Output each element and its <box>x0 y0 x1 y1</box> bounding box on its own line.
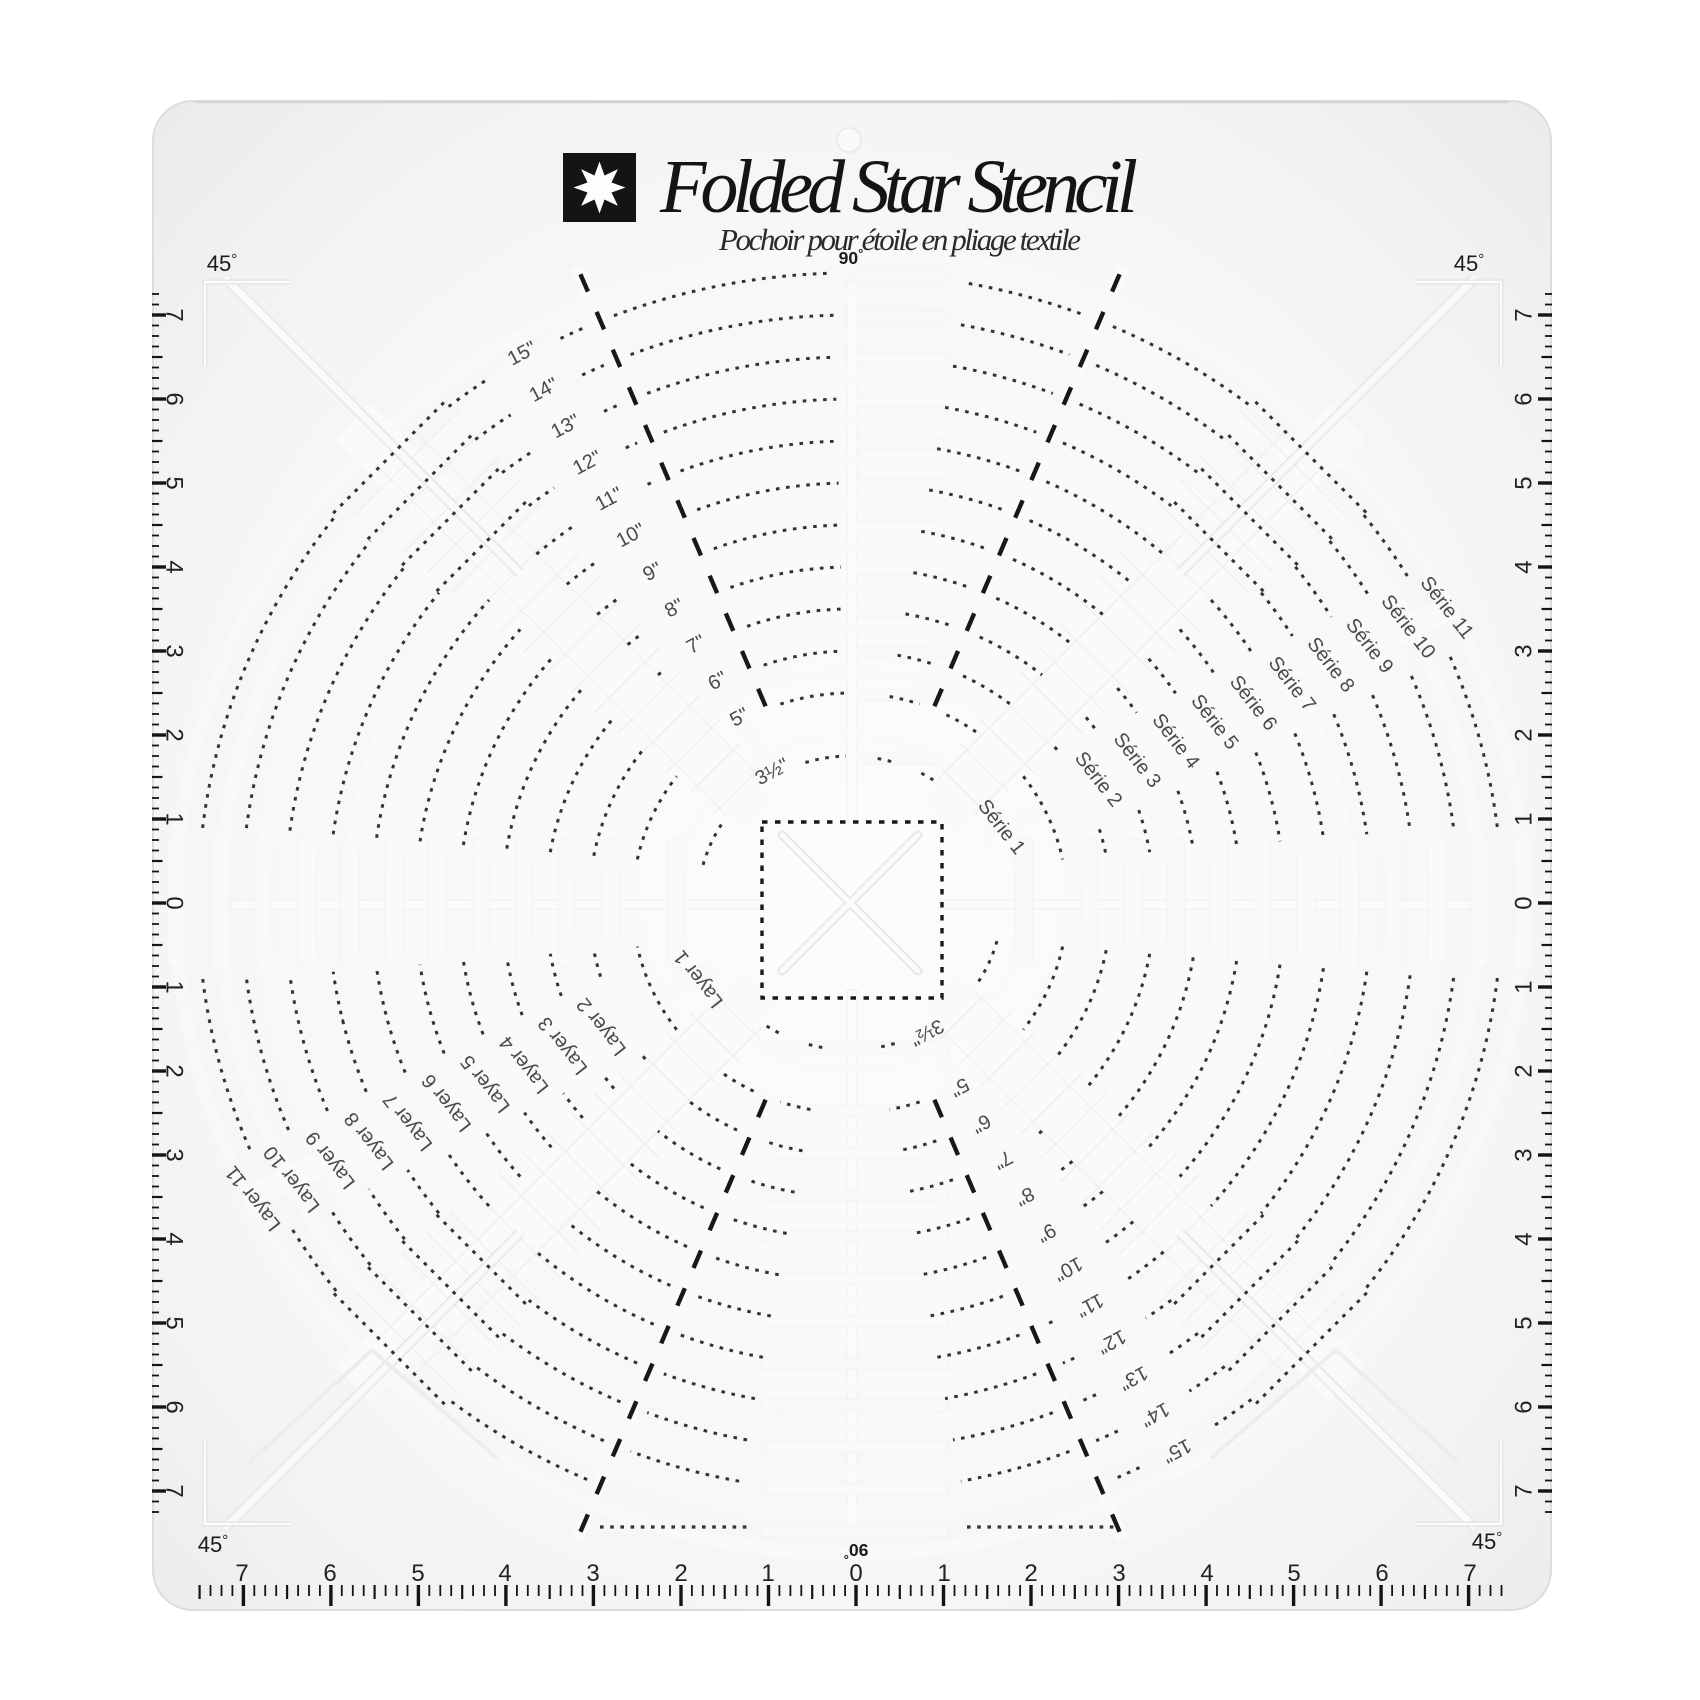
svg-text:2: 2 <box>161 728 188 741</box>
svg-text:6: 6 <box>161 1400 188 1413</box>
svg-text:4: 4 <box>1511 560 1538 573</box>
svg-text:1: 1 <box>161 812 188 825</box>
svg-text:0: 0 <box>161 896 188 909</box>
svg-text:5: 5 <box>161 476 188 489</box>
svg-text:5: 5 <box>411 1560 424 1587</box>
svg-text:6: 6 <box>1511 1400 1538 1413</box>
svg-text:3: 3 <box>1112 1560 1125 1587</box>
svg-text:3: 3 <box>161 644 188 657</box>
svg-text:4: 4 <box>161 1232 188 1245</box>
svg-text:Pochoir pour étoile en pliage: Pochoir pour étoile en pliage textile <box>718 222 1081 257</box>
svg-text:6: 6 <box>161 392 188 405</box>
svg-text:0: 0 <box>849 1560 862 1587</box>
svg-text:7: 7 <box>161 1484 188 1497</box>
svg-text:0: 0 <box>1511 896 1538 909</box>
svg-text:4: 4 <box>1511 1232 1538 1245</box>
svg-text:7: 7 <box>161 308 188 321</box>
svg-text:7: 7 <box>1463 1560 1476 1587</box>
svg-text:1: 1 <box>1511 812 1538 825</box>
svg-text:2: 2 <box>161 1064 188 1077</box>
svg-text:5: 5 <box>161 1316 188 1329</box>
svg-text:7: 7 <box>1511 1484 1538 1497</box>
svg-text:3: 3 <box>586 1560 599 1587</box>
svg-text:Folded Star Stencil: Folded Star Stencil <box>659 145 1138 229</box>
svg-text:2: 2 <box>1511 1064 1538 1077</box>
svg-text:1: 1 <box>937 1560 950 1587</box>
svg-text:3: 3 <box>1511 1148 1538 1161</box>
svg-text:3: 3 <box>1511 644 1538 657</box>
svg-text:4: 4 <box>161 560 188 573</box>
svg-text:2: 2 <box>674 1560 687 1587</box>
svg-text:1: 1 <box>161 980 188 993</box>
svg-text:4: 4 <box>498 1560 511 1587</box>
svg-text:4: 4 <box>1200 1560 1213 1587</box>
svg-text:6: 6 <box>1511 392 1538 405</box>
svg-text:1: 1 <box>1511 980 1538 993</box>
svg-text:2: 2 <box>1024 1560 1037 1587</box>
svg-text:6: 6 <box>323 1560 336 1587</box>
svg-text:5: 5 <box>1287 1560 1300 1587</box>
svg-text:6: 6 <box>1375 1560 1388 1587</box>
svg-text:7: 7 <box>235 1560 248 1587</box>
svg-text:5: 5 <box>1511 476 1538 489</box>
svg-text:3: 3 <box>161 1148 188 1161</box>
svg-text:7: 7 <box>1511 308 1538 321</box>
svg-text:1: 1 <box>761 1560 774 1587</box>
svg-text:5: 5 <box>1511 1316 1538 1329</box>
svg-text:2: 2 <box>1511 728 1538 741</box>
